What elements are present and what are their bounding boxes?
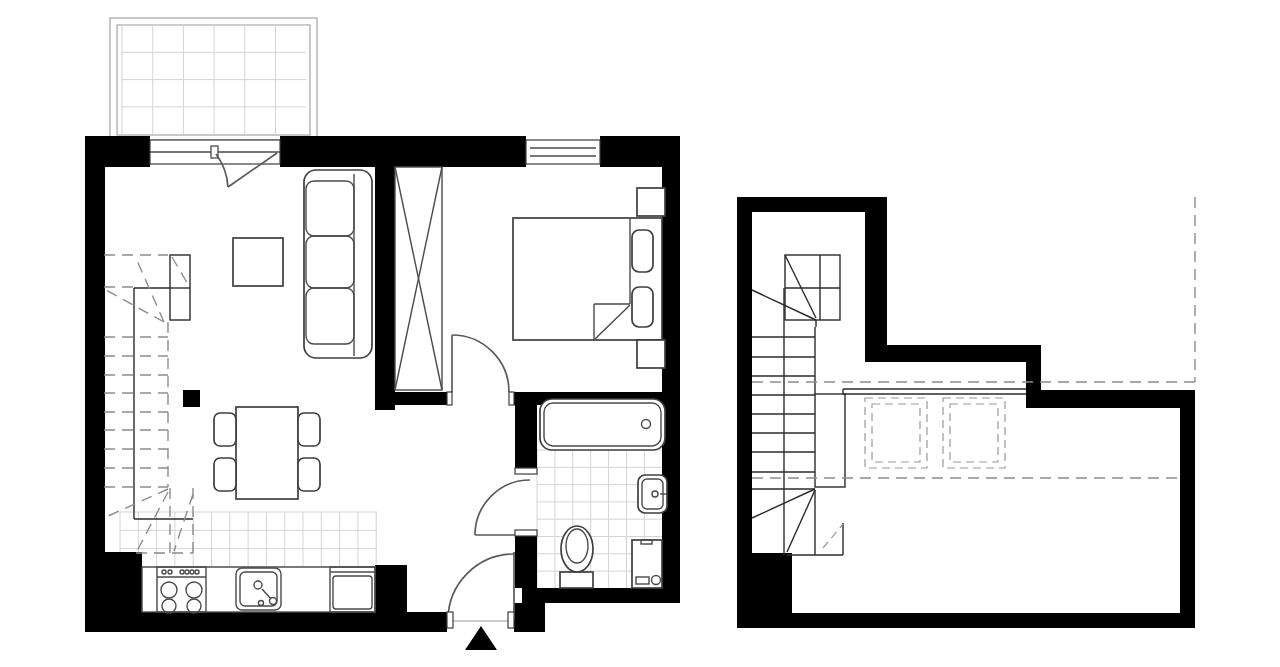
floor-plan-page bbox=[0, 0, 1280, 667]
door-jamb bbox=[508, 612, 514, 628]
stairs-dashed bbox=[174, 494, 193, 551]
stove-knob bbox=[195, 570, 199, 574]
wall bbox=[85, 612, 377, 632]
wall bbox=[395, 392, 447, 405]
upper-floor-plan bbox=[737, 197, 1195, 628]
wall bbox=[85, 136, 105, 556]
nightstand bbox=[637, 188, 665, 216]
closet-dashed-inner bbox=[950, 404, 998, 462]
stove-knob bbox=[185, 570, 189, 574]
burner bbox=[161, 582, 177, 598]
entrance-door-swing bbox=[448, 554, 514, 620]
balcony-border bbox=[110, 18, 317, 140]
sofa bbox=[304, 170, 372, 358]
door-jamb bbox=[447, 392, 452, 405]
toilet-tank bbox=[560, 572, 593, 588]
chair bbox=[298, 413, 320, 446]
wall bbox=[375, 565, 407, 632]
nightstand bbox=[637, 340, 665, 368]
faucet bbox=[259, 601, 264, 606]
wall bbox=[1026, 362, 1041, 408]
stairs-dashed bbox=[135, 256, 164, 322]
stairs-dashed bbox=[823, 524, 843, 548]
column bbox=[183, 390, 200, 407]
entrance-marker bbox=[465, 626, 497, 650]
wall bbox=[407, 612, 447, 632]
wall bbox=[280, 136, 526, 167]
wall bbox=[515, 535, 537, 588]
door-jamb bbox=[515, 530, 537, 536]
burner bbox=[187, 599, 201, 613]
burner bbox=[162, 599, 176, 613]
wall bbox=[865, 197, 887, 362]
stove-knob bbox=[168, 570, 172, 574]
stove-knob bbox=[180, 570, 184, 574]
ground-floor-plan bbox=[85, 18, 680, 650]
stove-knob bbox=[190, 570, 194, 574]
wall bbox=[1180, 408, 1195, 628]
bathtub bbox=[540, 399, 665, 450]
chair bbox=[298, 458, 320, 491]
wall bbox=[522, 588, 680, 603]
pillow bbox=[632, 230, 653, 272]
faucet bbox=[262, 589, 271, 599]
bathroom-door-swing bbox=[475, 480, 530, 535]
wall bbox=[737, 197, 887, 212]
bedroom-door-swing bbox=[452, 335, 509, 392]
door-jamb bbox=[509, 392, 514, 405]
stairs-dashed bbox=[172, 257, 189, 286]
door-jamb bbox=[515, 468, 537, 474]
wall bbox=[737, 613, 1195, 628]
closet-dashed-inner bbox=[872, 404, 920, 462]
closet-dashed bbox=[943, 398, 1005, 468]
door-jamb bbox=[447, 612, 453, 628]
stairs-dashed bbox=[106, 489, 168, 517]
wall bbox=[737, 197, 752, 628]
kitchen-appliance bbox=[330, 567, 375, 612]
chair bbox=[214, 458, 236, 491]
burner bbox=[186, 582, 202, 598]
wall bbox=[1041, 390, 1195, 408]
sink-drain bbox=[254, 581, 262, 589]
dining-table bbox=[236, 407, 298, 499]
wall bbox=[515, 392, 537, 473]
coffee-table bbox=[233, 238, 283, 286]
wall bbox=[887, 345, 1041, 362]
wall bbox=[752, 553, 792, 613]
kitchen-appliance bbox=[333, 576, 372, 609]
wall bbox=[514, 603, 545, 632]
floor-plan-drawing bbox=[0, 0, 1280, 667]
wall bbox=[375, 136, 395, 410]
closet-dashed bbox=[865, 398, 927, 468]
faucet bbox=[270, 598, 277, 605]
stair-railing bbox=[815, 394, 845, 487]
chair bbox=[214, 413, 236, 446]
pillow bbox=[632, 287, 653, 327]
stove-knob bbox=[162, 570, 166, 574]
bedroom-window bbox=[526, 140, 600, 164]
stairs bbox=[785, 255, 816, 318]
